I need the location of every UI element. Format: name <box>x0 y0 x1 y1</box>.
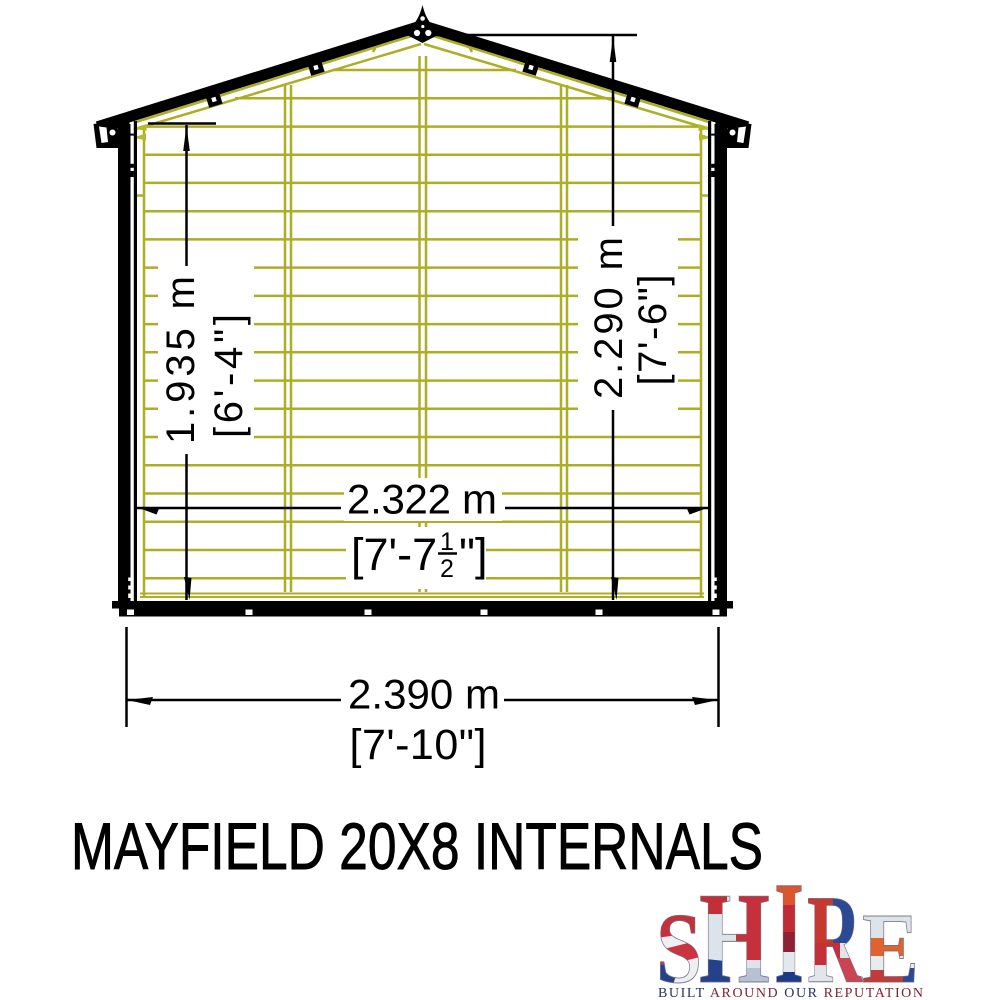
svg-text:[6'-4"]: [6'-4"] <box>207 314 251 438</box>
svg-text:1: 1 <box>440 528 454 556</box>
svg-text:[7'-10"]: [7'-10"] <box>350 721 487 769</box>
svg-text:2: 2 <box>440 555 454 583</box>
svg-text:2.322 m: 2.322 m <box>347 476 497 523</box>
svg-text:[7'-6"]: [7'-6"] <box>631 275 675 386</box>
svg-text:I: I <box>774 851 804 1000</box>
svg-text:H: H <box>699 866 770 1000</box>
svg-text:E: E <box>862 892 919 1000</box>
svg-text:S: S <box>656 892 702 1000</box>
svg-text:[7'-7: [7'-7 <box>351 529 437 580</box>
svg-text:"]: "] <box>459 529 487 580</box>
svg-text:1.935 m: 1.935 m <box>159 276 203 444</box>
svg-text:2.290 m: 2.290 m <box>587 237 631 399</box>
svg-text:2.390 m: 2.390 m <box>348 671 500 718</box>
svg-text:MAYFIELD 20X8 INTERNALS: MAYFIELD 20X8 INTERNALS <box>71 809 763 883</box>
svg-text:R: R <box>807 870 863 1000</box>
svg-text:BUILT AROUND OUR REPUTATION: BUILT AROUND OUR REPUTATION <box>658 986 923 1000</box>
